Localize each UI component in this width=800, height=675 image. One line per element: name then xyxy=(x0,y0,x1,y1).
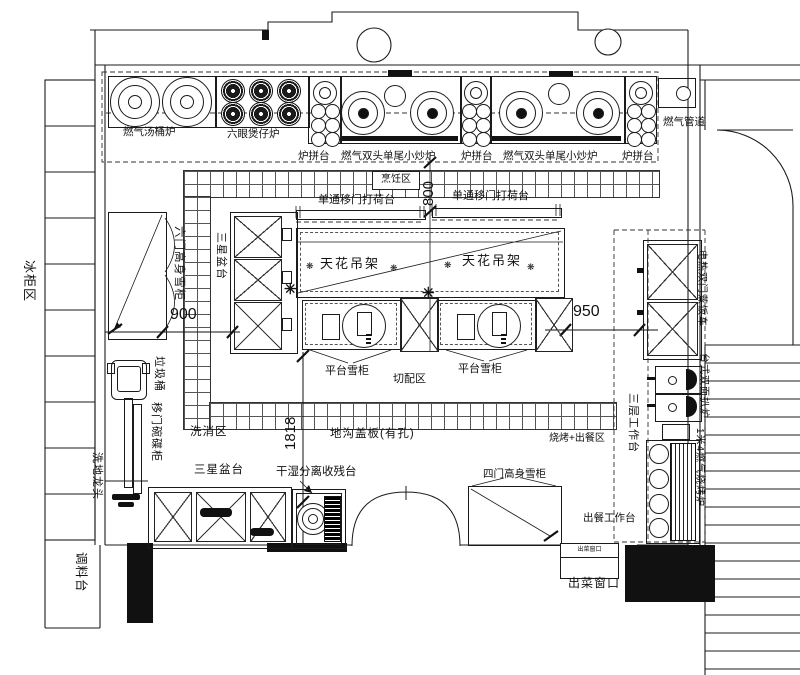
dim-800: 800 xyxy=(421,181,437,206)
floor-faucet-icon xyxy=(118,502,134,507)
griddle-knob-icon xyxy=(668,376,677,385)
sink-basin xyxy=(234,259,282,301)
cleaver-icon xyxy=(492,312,507,336)
steamer-handle-icon xyxy=(637,268,644,273)
cleaver-icon xyxy=(366,334,371,344)
platform-fridge-left-label: 平台雪柜 xyxy=(325,365,369,378)
washing-zone-label: 洗消区 xyxy=(190,426,228,439)
pass-counter-right-label: 单通移门打荷台 xyxy=(452,190,529,203)
corner-table xyxy=(535,298,573,352)
floor-faucet-label: 洗地龙头 xyxy=(90,452,104,500)
star-symbol: ✳ xyxy=(284,280,297,298)
right-door-leaf xyxy=(717,130,793,345)
ring-icon xyxy=(325,118,340,133)
rice-steamer-unit xyxy=(647,302,698,356)
island-sink-label: 三星盆台 xyxy=(214,232,228,280)
chopping-board-icon xyxy=(322,314,340,340)
seasoning-zone-walls xyxy=(45,540,100,628)
sink-basin xyxy=(234,302,282,350)
bbq-burner-icon xyxy=(649,469,669,489)
ring-icon xyxy=(476,104,491,119)
wok-burner-icon xyxy=(593,108,604,119)
wok-range-2-label: 燃气双头单尾小炒炉 xyxy=(503,150,598,162)
cutting-zone-label: 切配区 xyxy=(393,373,426,386)
faucet-icon xyxy=(250,528,274,536)
cleaver-icon xyxy=(501,334,506,344)
burner-icon xyxy=(277,79,301,103)
burner-icon xyxy=(221,102,245,126)
plate-icon xyxy=(308,514,318,524)
faucet-icon xyxy=(282,228,292,241)
ring-icon xyxy=(627,104,642,119)
wok-burner-icon xyxy=(358,108,369,119)
stove-side-table-c-label: 炉拼台 xyxy=(622,150,654,162)
tall-freezer-6door xyxy=(108,212,167,340)
platform-fridge-right-label: 平台雪柜 xyxy=(458,363,502,376)
black-column-bottom-right xyxy=(625,545,715,602)
dish-cabinet xyxy=(133,404,142,494)
wok-burner-icon xyxy=(516,108,527,119)
connector-table xyxy=(662,424,690,440)
waste-chute-hatch xyxy=(324,496,341,542)
six-eye-stove-label: 六眼煲仔炉 xyxy=(227,128,280,140)
pass-counter-right xyxy=(432,208,562,218)
black-column-bottom-left xyxy=(127,543,153,623)
trash-bin-icon xyxy=(142,363,150,374)
tall-freezer-6door-label: 六门高身雪柜 xyxy=(172,226,186,301)
ring-icon xyxy=(325,104,340,119)
waste-table-label: 干湿分离收残台 xyxy=(276,466,357,479)
star-symbol: ✳ xyxy=(422,284,435,302)
ceiling-rack-left-label: 天花吊架 xyxy=(320,257,380,272)
bbq-serving-zone-label: 烧烤+出餐区 xyxy=(549,433,605,445)
brace-platform-left xyxy=(310,350,391,363)
dim-900: 900 xyxy=(170,306,197,324)
ring-icon xyxy=(462,118,477,133)
sink-basin xyxy=(234,216,282,258)
ring-icon xyxy=(311,132,326,147)
burner-icon xyxy=(249,79,273,103)
stove-side-table-b-label: 炉拼台 xyxy=(461,150,493,162)
pilot-ring-icon xyxy=(548,83,570,105)
soup-burner-icon xyxy=(128,95,142,109)
griddle-label: 台式双面扒炉 xyxy=(696,353,710,419)
soup-stove-label: 燃气汤桶炉 xyxy=(123,126,176,138)
corner-table xyxy=(400,298,439,352)
double-door-arcs xyxy=(352,486,460,546)
right-door-arc xyxy=(717,130,793,206)
seasoning-area-label: 调料台 xyxy=(74,552,88,593)
bbq-grill-label: 1米4燃气烧烤炉 xyxy=(692,428,706,507)
ring-icon xyxy=(635,87,647,99)
ceiling-rack-right-label: 天花吊架 xyxy=(462,254,522,269)
tall-freezer-4door xyxy=(468,486,562,546)
dim-1818: 1818 xyxy=(283,417,299,450)
rice-steamer-unit xyxy=(647,244,698,300)
brace-platform-right xyxy=(446,350,527,361)
burner-icon xyxy=(221,79,245,103)
ring-icon xyxy=(476,118,491,133)
chopping-board-icon xyxy=(457,314,475,340)
ring-icon xyxy=(311,118,326,133)
ring-icon xyxy=(319,87,331,99)
ring-icon xyxy=(325,132,340,147)
gas-pipe-icon xyxy=(676,86,691,101)
trench-cover-label: 地沟盖板(有孔) xyxy=(330,428,415,441)
flower-symbol: ❋ xyxy=(444,260,452,271)
ring-icon xyxy=(462,104,477,119)
trash-bin-icon xyxy=(117,366,141,392)
gas-pipe-label: 燃气管道 xyxy=(663,116,705,128)
flower-symbol: ❋ xyxy=(306,261,314,272)
stove-side-table-a-label: 炉拼台 xyxy=(298,150,330,162)
flower-symbol: ❋ xyxy=(390,263,398,274)
ring-icon xyxy=(476,132,491,147)
faucet-icon xyxy=(200,508,232,517)
wok-range-1-label: 燃气双头单尾小炒炉 xyxy=(341,150,436,162)
dish-cabinet xyxy=(124,398,133,488)
floor-faucet-icon xyxy=(112,494,140,500)
griddle-tick xyxy=(647,377,655,380)
ring-icon xyxy=(641,118,656,133)
left-shelf-separators xyxy=(45,126,95,494)
top-outer-wall xyxy=(90,12,688,30)
pass-counter-left-label: 单通移门打荷台 xyxy=(318,194,395,207)
soup-burner-icon xyxy=(180,95,194,109)
pass-counter-dashes xyxy=(296,220,560,222)
kitchen-floorplan: 燃气汤桶炉 六眼煲仔炉 炉拼台 燃气双头单尾小炒炉 炉拼台 燃气双头单尾小炒炉 xyxy=(0,0,800,675)
burner-icon xyxy=(249,102,273,126)
stairs xyxy=(705,345,800,675)
trash-bin-icon xyxy=(107,363,115,374)
cleaver-icon xyxy=(357,312,372,336)
ring-icon xyxy=(627,118,642,133)
ring-icon xyxy=(641,104,656,119)
serving-window-box: 出菜窗口 xyxy=(560,543,619,558)
ring-icon xyxy=(311,104,326,119)
sink-basin xyxy=(196,492,246,542)
faucet-icon xyxy=(282,318,292,331)
wok-burner-icon xyxy=(427,108,438,119)
bbq-burner-icon xyxy=(649,518,669,538)
trash-bin-label: 垃圾桶 xyxy=(152,356,166,392)
ring-icon xyxy=(641,132,656,147)
column-circle-right xyxy=(595,29,621,55)
bbq-burner-icon xyxy=(649,444,669,464)
sink-basin xyxy=(154,492,192,542)
bottom-sink-label: 三星盆台 xyxy=(194,464,244,477)
tall-freezer-4door-label: 四门高身雪柜 xyxy=(483,468,546,480)
serving-window-box-label: 出菜窗口 xyxy=(577,547,601,553)
ring-icon xyxy=(470,87,482,99)
bbq-burner-icon xyxy=(649,494,669,514)
cooking-zone-label: 烹饪区 xyxy=(372,171,420,190)
griddle-tick xyxy=(647,404,655,407)
serve-table-label: 出餐工作台 xyxy=(583,512,636,524)
pass-counter-left xyxy=(296,210,426,220)
griddle-knob-icon xyxy=(668,403,677,412)
pilot-ring-icon xyxy=(384,85,406,107)
ring-icon xyxy=(462,132,477,147)
serving-window-label: 出菜窗口 xyxy=(568,577,620,591)
wall-hatch-3 xyxy=(262,30,269,40)
freezer-area-label: 冰柜区 xyxy=(22,260,36,302)
burner-icon xyxy=(277,102,301,126)
steamer-handle-icon xyxy=(637,310,644,315)
column-circle-left xyxy=(357,28,391,62)
three-tier-table-label: 三层工作台 xyxy=(626,393,640,453)
ring-icon xyxy=(627,132,642,147)
dim-950: 950 xyxy=(573,303,600,321)
flower-symbol: ❋ xyxy=(527,262,535,273)
dish-cabinet-label: 移门碗碟柜 xyxy=(149,402,163,462)
rice-steamer-label: 电热双门蒸饭车 xyxy=(694,250,708,327)
